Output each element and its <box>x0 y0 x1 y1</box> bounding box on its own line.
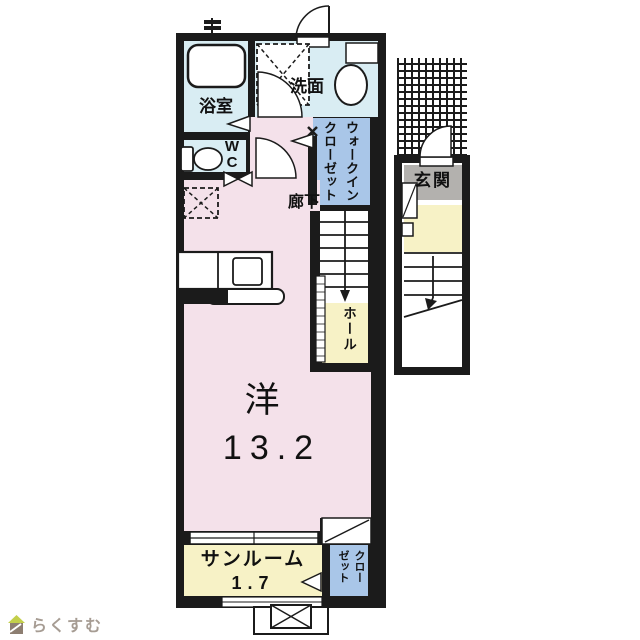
logo-text: らくすむ <box>31 612 103 636</box>
walk-in-closet-label: ウォークインクローゼット <box>318 121 362 207</box>
wall-stair-side <box>310 211 320 372</box>
house-icon <box>7 614 26 635</box>
stairwell-internal <box>320 211 368 303</box>
logo: らくすむ <box>7 612 103 636</box>
outdoor-unit <box>254 605 328 634</box>
sunroom-label: サンルーム <box>186 549 320 571</box>
entrance-label: 玄関 <box>406 171 460 191</box>
closet-label: クローゼット <box>333 550 367 592</box>
hall-label: ホール <box>334 306 356 362</box>
room-main <box>184 180 320 531</box>
bathroom-label: 浴室 <box>184 97 248 117</box>
porch-grid <box>397 58 467 156</box>
main-room-label: 洋 <box>202 381 322 421</box>
sunroom-area: 1.7 <box>186 573 320 594</box>
washroom-label: 洗面 <box>281 77 333 97</box>
pipe-symbol-icon <box>204 18 221 33</box>
wc-label: W C <box>219 139 245 171</box>
main-room-area: 13.2 <box>187 429 357 468</box>
room-bathroom <box>184 41 248 132</box>
floor-plan: 浴室 洗面 W C 廊下 ウォークインクローゼット ホール 洋 13.2 サンル… <box>0 0 640 640</box>
entrance-floor <box>404 205 462 252</box>
